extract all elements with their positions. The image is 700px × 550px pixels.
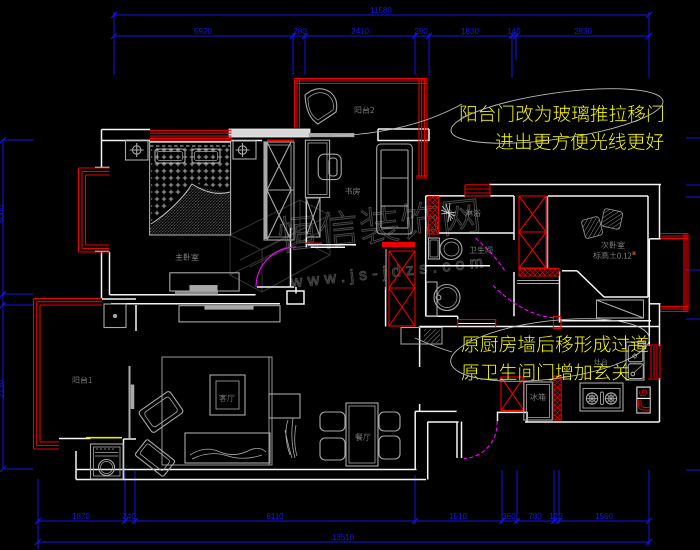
svg-text:240: 240	[122, 512, 136, 521]
svg-text:1830: 1830	[461, 27, 479, 36]
svg-text:280: 280	[293, 27, 307, 36]
svg-text:6110: 6110	[266, 512, 284, 521]
svg-text:360: 360	[502, 512, 516, 521]
svg-text:1560: 1560	[595, 512, 613, 521]
svg-text:2830: 2830	[574, 27, 592, 36]
svg-text:280: 280	[414, 27, 428, 36]
svg-text:11580: 11580	[370, 6, 392, 15]
svg-text:2410: 2410	[351, 27, 369, 36]
svg-text:1870: 1870	[72, 512, 90, 521]
svg-text:780: 780	[528, 512, 542, 521]
svg-text:1510: 1510	[449, 512, 467, 521]
svg-text:5920: 5920	[194, 27, 212, 36]
svg-text:140: 140	[507, 27, 521, 36]
svg-text:120: 120	[549, 512, 563, 521]
svg-text:2130: 2130	[0, 380, 6, 398]
svg-text:6000: 6000	[0, 205, 6, 223]
svg-text:13510: 13510	[332, 533, 355, 542]
